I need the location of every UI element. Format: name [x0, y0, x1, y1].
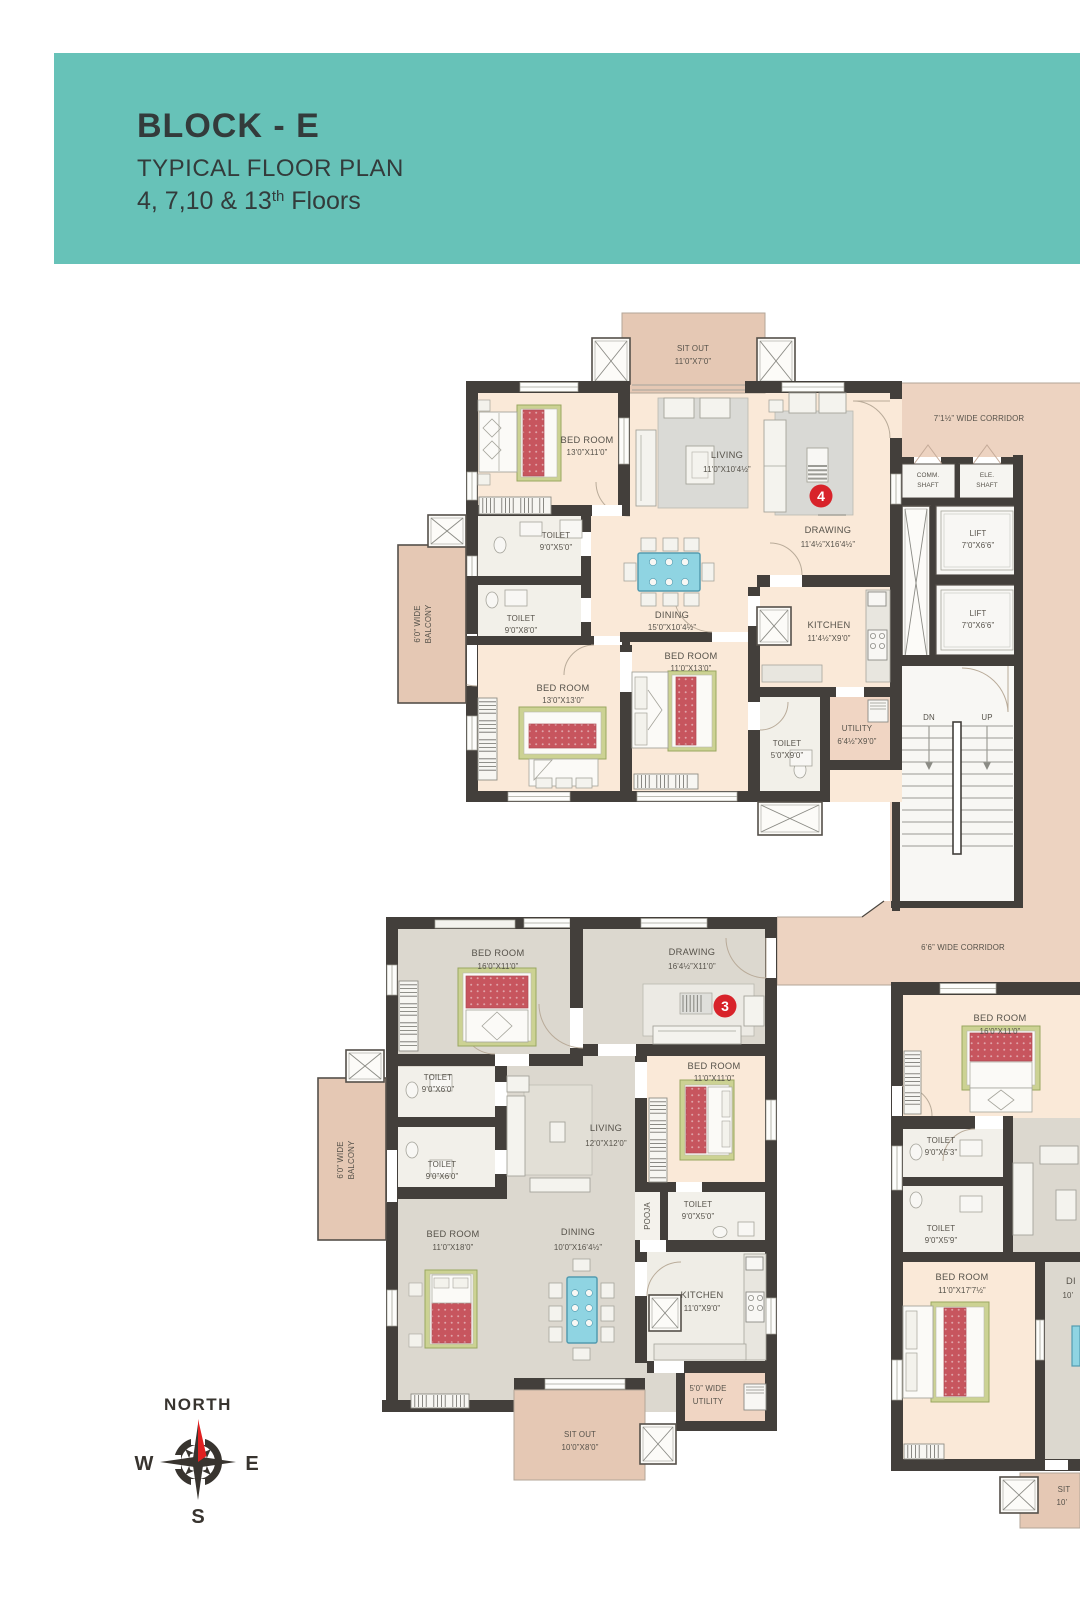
svg-text:9'0”X5'9”: 9'0”X5'9” [925, 1236, 958, 1245]
svg-text:BED ROOM: BED ROOM [664, 651, 717, 661]
svg-text:11'0”X10'4½”: 11'0”X10'4½” [703, 465, 751, 474]
svg-text:16'0”X11'0”: 16'0”X11'0” [980, 1027, 1021, 1036]
svg-text:KITCHEN: KITCHEN [681, 1290, 724, 1300]
svg-text:TOILET: TOILET [773, 739, 801, 748]
svg-text:5'0” WIDE: 5'0” WIDE [689, 1384, 726, 1393]
svg-text:S: S [191, 1506, 204, 1528]
svg-text:SHAFT: SHAFT [917, 482, 938, 489]
svg-text:ELE.: ELE. [980, 472, 994, 479]
svg-text:6’6” WIDE CORRIDOR: 6’6” WIDE CORRIDOR [921, 943, 1005, 952]
svg-text:6'4½”X9'0”: 6'4½”X9'0” [837, 737, 876, 746]
svg-text:BED ROOM: BED ROOM [560, 435, 613, 445]
svg-text:10'0”X8'0”: 10'0”X8'0” [562, 1443, 599, 1452]
svg-text:11'0”X9'0”: 11'0”X9'0” [684, 1304, 721, 1313]
svg-text:BED ROOM: BED ROOM [973, 1013, 1026, 1023]
svg-text:12'0”X12'0”: 12'0”X12'0” [585, 1139, 627, 1148]
svg-text:TYPICAL FLOOR PLAN: TYPICAL FLOOR PLAN [137, 155, 404, 182]
svg-text:9'0”X6'0”: 9'0”X6'0” [426, 1172, 459, 1181]
svg-text:11'0”X13'0”: 11'0”X13'0” [671, 664, 712, 673]
svg-text:LIFT: LIFT [970, 609, 987, 618]
svg-text:7'0”X6'6”: 7'0”X6'6” [962, 541, 995, 550]
svg-text:W: W [135, 1453, 154, 1475]
svg-text:TOILET: TOILET [507, 614, 535, 623]
svg-text:TOILET: TOILET [424, 1073, 452, 1082]
svg-text:UTILITY: UTILITY [842, 724, 873, 733]
svg-text:10'0”X16'4½”: 10'0”X16'4½” [554, 1243, 602, 1252]
svg-text:SHAFT: SHAFT [976, 482, 997, 489]
svg-text:SIT: SIT [1058, 1485, 1071, 1494]
svg-text:9'0”X5'0”: 9'0”X5'0” [682, 1212, 715, 1221]
svg-text:E: E [245, 1453, 258, 1475]
svg-text:COMM.: COMM. [917, 472, 940, 479]
svg-text:BLOCK - E: BLOCK - E [137, 107, 320, 145]
svg-text:SIT OUT: SIT OUT [677, 344, 709, 353]
svg-text:4, 7,10 & 13th Floors: 4, 7,10 & 13th Floors [137, 187, 361, 215]
svg-text:TOILET: TOILET [927, 1224, 955, 1233]
svg-text:LIFT: LIFT [970, 529, 987, 538]
svg-text:9'0”X6'0”: 9'0”X6'0” [422, 1085, 455, 1094]
svg-text:9'0”X5'3”: 9'0”X5'3” [925, 1148, 958, 1157]
svg-text:DRAWING: DRAWING [805, 525, 852, 535]
svg-text:UP: UP [981, 713, 992, 722]
svg-text:13'0”X11'0”: 13'0”X11'0” [567, 448, 608, 457]
svg-text:TOILET: TOILET [684, 1200, 712, 1209]
svg-text:9'0”X5'0”: 9'0”X5'0” [540, 543, 573, 552]
svg-text:BED ROOM: BED ROOM [426, 1229, 479, 1239]
svg-text:11'0”X18'0”: 11'0”X18'0” [433, 1243, 474, 1252]
svg-text:DINING: DINING [655, 610, 689, 620]
svg-text:LIVING: LIVING [590, 1123, 622, 1133]
svg-text:SIT OUT: SIT OUT [564, 1430, 596, 1439]
svg-text:9'0”X8'0”: 9'0”X8'0” [505, 626, 538, 635]
svg-text:10’: 10’ [1057, 1498, 1068, 1507]
svg-text:11'0”X7'0”: 11'0”X7'0” [675, 357, 712, 366]
svg-text:13'0”X13'0”: 13'0”X13'0” [542, 696, 584, 705]
svg-text:BED ROOM: BED ROOM [536, 683, 589, 693]
svg-text:11'0”X17'7½”: 11'0”X17'7½” [938, 1286, 986, 1295]
svg-text:7’1½” WIDE CORRIDOR: 7’1½” WIDE CORRIDOR [934, 414, 1025, 423]
svg-text:LIVING: LIVING [711, 450, 743, 460]
svg-text:4: 4 [817, 488, 825, 504]
svg-text:POOJA: POOJA [643, 1202, 652, 1230]
svg-text:7'0”X6'6”: 7'0”X6'6” [962, 621, 995, 630]
svg-text:10’: 10’ [1063, 1291, 1074, 1300]
svg-text:BED ROOM: BED ROOM [935, 1272, 988, 1282]
svg-text:15'0”X10'4½”: 15'0”X10'4½” [648, 623, 696, 632]
svg-text:11'4½”X9'0”: 11'4½”X9'0” [807, 634, 850, 643]
svg-text:11'4½”X16'4½”: 11'4½”X16'4½” [801, 540, 856, 549]
svg-text:TOILET: TOILET [428, 1160, 456, 1169]
svg-text:5'0”X9'0”: 5'0”X9'0” [771, 751, 804, 760]
svg-text:11'0”X11'0”: 11'0”X11'0” [694, 1074, 735, 1083]
svg-text:UTILITY: UTILITY [693, 1397, 724, 1406]
svg-text:DINING: DINING [561, 1227, 595, 1237]
svg-text:BED ROOM: BED ROOM [471, 948, 524, 958]
svg-text:DN: DN [923, 713, 935, 722]
svg-text:16'0”X11'0”: 16'0”X11'0” [478, 962, 519, 971]
svg-text:16'4½”X11'0”: 16'4½”X11'0” [668, 962, 716, 971]
svg-text:NORTH: NORTH [164, 1395, 232, 1414]
svg-text:DI: DI [1066, 1276, 1076, 1286]
svg-text:BED ROOM: BED ROOM [687, 1061, 740, 1071]
svg-text:TOILET: TOILET [542, 531, 570, 540]
svg-text:TOILET: TOILET [927, 1136, 955, 1145]
svg-text:DRAWING: DRAWING [669, 947, 716, 957]
svg-text:KITCHEN: KITCHEN [808, 620, 851, 630]
svg-text:3: 3 [721, 998, 729, 1014]
